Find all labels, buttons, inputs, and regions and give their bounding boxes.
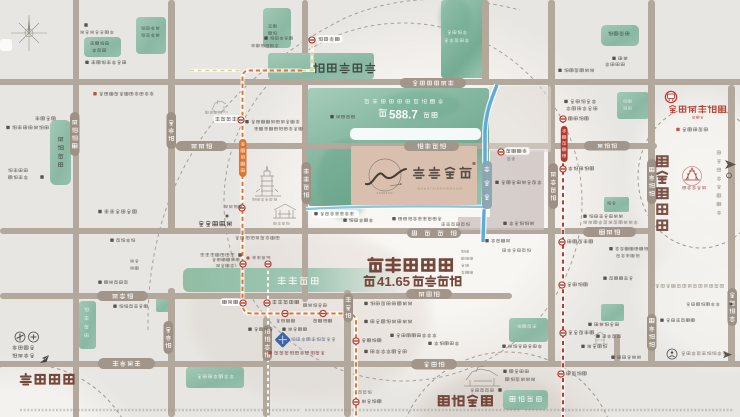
svg-text:M O U N T A I N R I V E R S I: M O U N T A I N R I V E R S I D E <box>417 187 462 191</box>
svg-text:41.65: 41.65 <box>377 274 410 289</box>
svg-text:588.7: 588.7 <box>389 110 418 122</box>
svg-text:S H A N S H U I: S H A N S H U I <box>377 192 394 195</box>
